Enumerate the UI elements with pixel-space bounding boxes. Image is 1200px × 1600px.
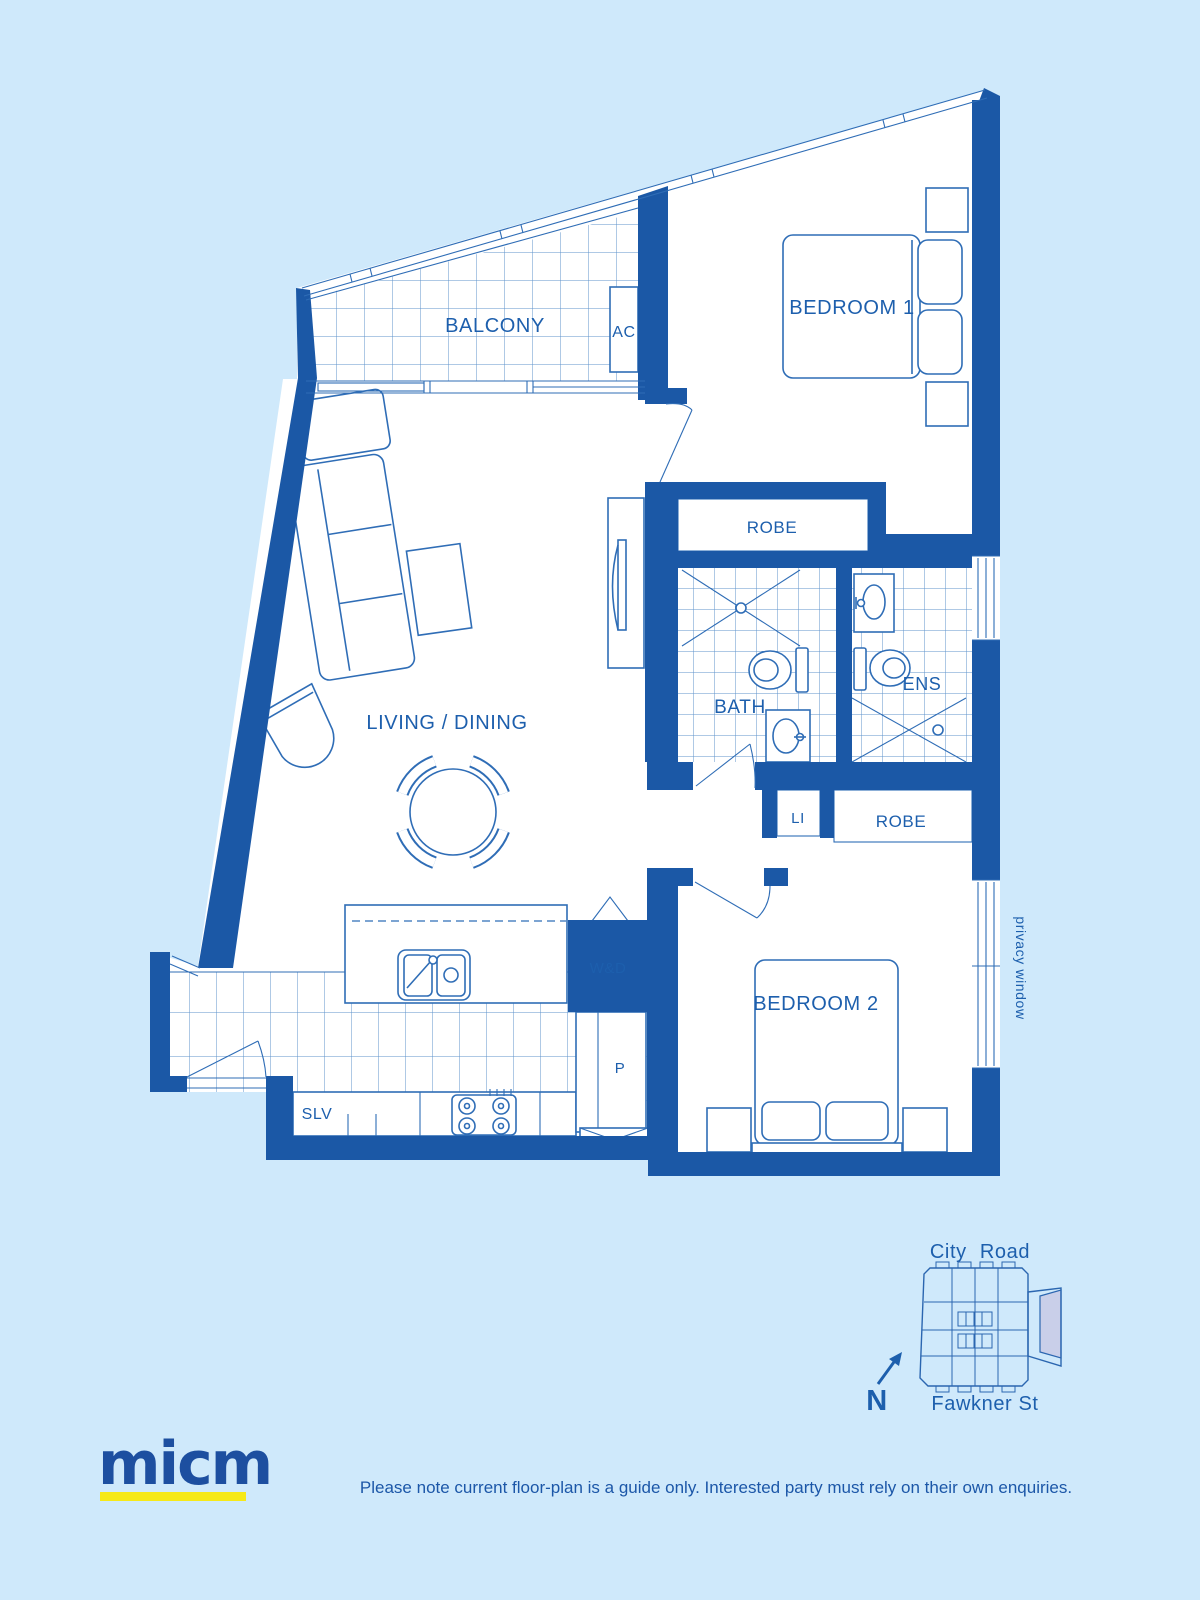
bedroom2-label: BEDROOM 2 <box>753 993 878 1015</box>
bath-label: BATH <box>714 697 766 718</box>
pantry-label: P <box>615 1060 626 1077</box>
robe2-label: ROBE <box>876 812 927 831</box>
north-arrow: N <box>866 1352 902 1417</box>
street-bottom-label: Fawkner St <box>931 1393 1038 1415</box>
floor-plan-svg: BALCONY AC BEDROOM 1 ROBE BATH ENS LI RO… <box>0 0 1200 1600</box>
north-label: N <box>866 1385 888 1417</box>
balcony-label: BALCONY <box>445 315 545 337</box>
shelves-label: SLV <box>302 1106 333 1123</box>
living-label: LIVING / DINING <box>366 712 527 734</box>
bedroom1-label: BEDROOM 1 <box>789 297 914 319</box>
street-top-label: City Road <box>930 1241 1030 1263</box>
ens-basin <box>854 574 894 632</box>
bath-basin <box>766 710 810 762</box>
bath-toilet <box>749 648 808 692</box>
footer: micm Please note current floor-plan is a… <box>98 1429 1072 1501</box>
ac-label: AC <box>612 324 635 341</box>
wd-label: W&D <box>590 960 627 977</box>
cooktop <box>452 1089 516 1135</box>
pantry-cabinet <box>576 1012 646 1132</box>
logo-underline <box>100 1492 246 1501</box>
kitchen-island <box>345 905 567 1003</box>
bathroom-floor <box>678 568 972 762</box>
disclaimer-text: Please note current floor-plan is a guid… <box>360 1478 1072 1497</box>
ens-label: ENS <box>903 674 942 694</box>
robe1-label: ROBE <box>747 518 798 537</box>
linen-label: LI <box>791 810 805 827</box>
tv-cabinet <box>608 498 644 668</box>
privacy-window-label: privacy window <box>1013 916 1029 1020</box>
kitchen-bench <box>293 1092 576 1136</box>
dining-table <box>402 761 503 862</box>
coffee-table <box>406 544 471 636</box>
key-plan: City Road Fawkner St <box>920 1241 1061 1415</box>
floor-plan-page: BALCONY AC BEDROOM 1 ROBE BATH ENS LI RO… <box>0 0 1200 1600</box>
micm-logo: micm <box>98 1429 271 1499</box>
